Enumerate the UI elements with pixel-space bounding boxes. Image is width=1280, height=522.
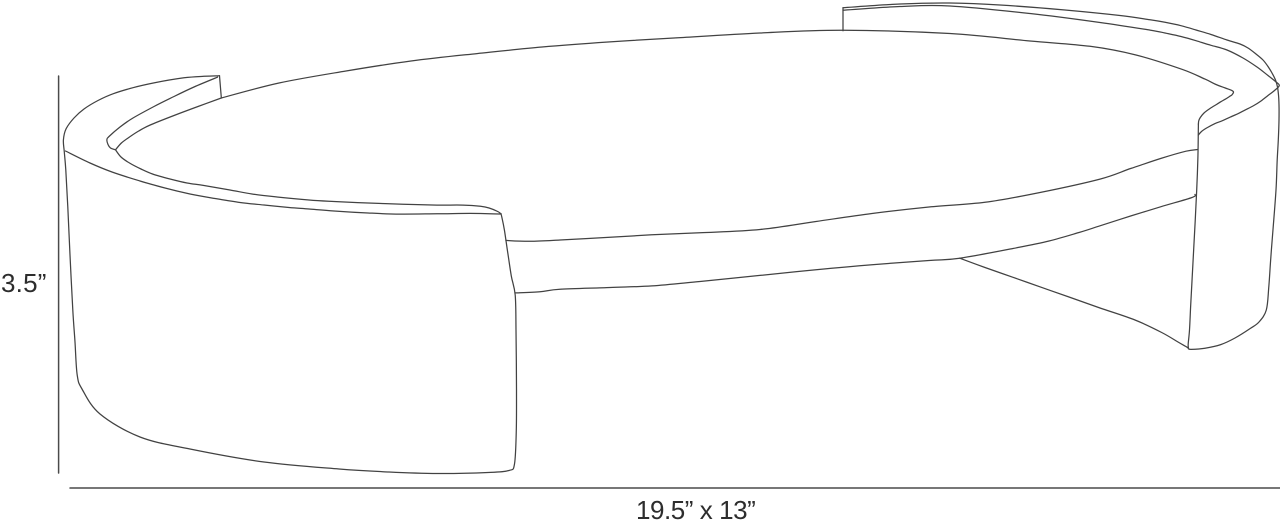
- svg-text:19.5” x 13”: 19.5” x 13”: [636, 495, 755, 522]
- svg-text:3.5”: 3.5”: [1, 268, 47, 298]
